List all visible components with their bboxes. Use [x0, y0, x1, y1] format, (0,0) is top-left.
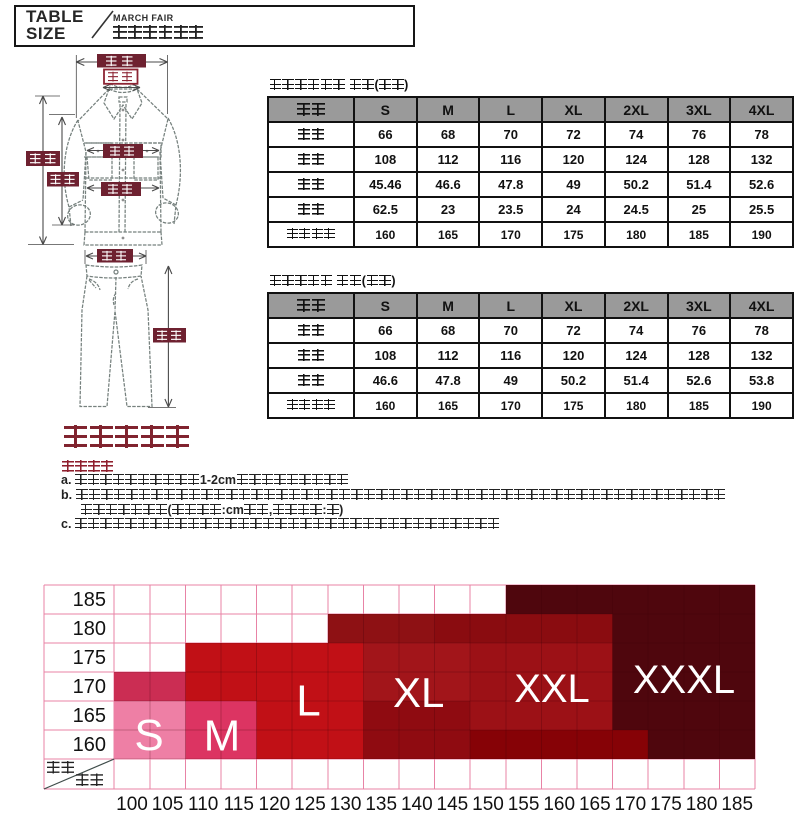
svg-text:XXL: XXL: [514, 667, 590, 711]
svg-text:115: 115: [224, 794, 254, 815]
svg-text:180: 180: [686, 794, 718, 815]
svg-text:155: 155: [508, 794, 540, 815]
svg-text:L: L: [296, 677, 320, 726]
svg-text:S: S: [134, 711, 163, 760]
svg-text:140: 140: [401, 794, 433, 815]
svg-text:170: 170: [73, 676, 106, 698]
svg-text:130: 130: [330, 794, 362, 815]
svg-text:105: 105: [152, 794, 184, 815]
svg-text:185: 185: [73, 589, 106, 611]
svg-text:110: 110: [188, 794, 218, 815]
svg-text:175: 175: [650, 794, 682, 815]
svg-text:160: 160: [73, 734, 106, 756]
svg-text:175: 175: [73, 647, 106, 669]
svg-text:100: 100: [116, 794, 148, 815]
svg-text:165: 165: [73, 705, 106, 727]
svg-text:180: 180: [73, 618, 106, 640]
svg-text:135: 135: [365, 794, 397, 815]
svg-text:145: 145: [437, 794, 469, 815]
svg-text:125: 125: [294, 794, 326, 815]
svg-text:120: 120: [259, 794, 291, 815]
svg-text:M: M: [204, 712, 241, 761]
svg-text:150: 150: [472, 794, 504, 815]
svg-text:185: 185: [721, 794, 753, 815]
svg-text:XXXL: XXXL: [633, 658, 735, 702]
svg-text:XL: XL: [393, 669, 444, 716]
svg-text:170: 170: [615, 794, 647, 815]
svg-text:160: 160: [543, 794, 575, 815]
svg-text:165: 165: [579, 794, 611, 815]
